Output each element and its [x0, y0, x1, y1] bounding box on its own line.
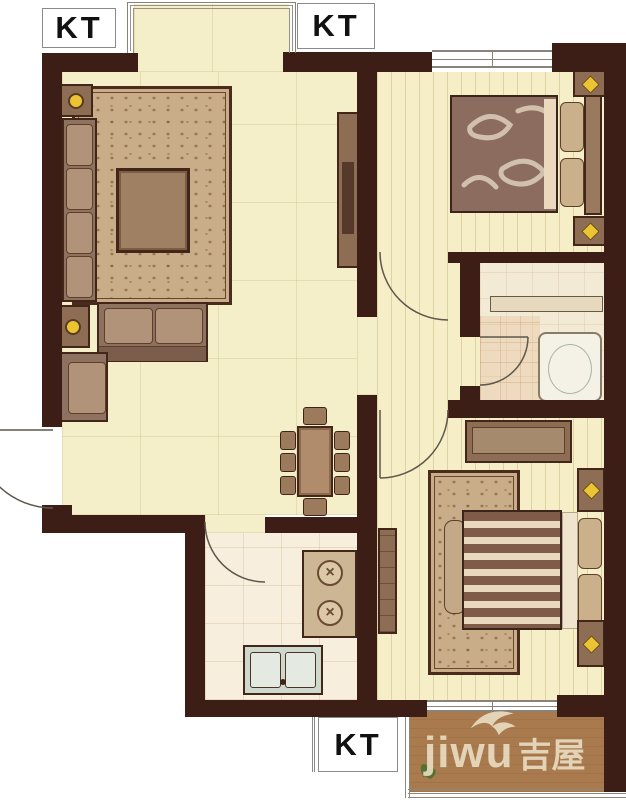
dining-chair [303, 498, 327, 516]
kt-label-bottom: KT [318, 717, 398, 772]
kt-label-top-left: KT [42, 8, 116, 48]
coffee-table [116, 168, 190, 253]
lamp-icon [65, 319, 81, 335]
master-pillow [578, 518, 602, 569]
star-lamp-icon [581, 75, 599, 93]
corner-table-top [58, 84, 93, 117]
lamp-icon [68, 93, 84, 109]
wall [42, 53, 62, 427]
bedroom2-nightstand [573, 70, 606, 97]
wall [460, 263, 480, 337]
wall [185, 515, 205, 717]
master-bed-sheet [562, 512, 578, 629]
master-wardrobe [378, 528, 397, 634]
floor-plan: × × [0, 0, 626, 800]
bed-sheet [544, 99, 556, 209]
wall [448, 400, 626, 418]
wall [448, 252, 604, 263]
sofa-small [97, 302, 208, 362]
star-lamp-icon [582, 635, 600, 653]
bedroom2-pillow [560, 158, 584, 207]
faucet [280, 679, 286, 685]
kitchen-sink [243, 645, 323, 695]
dining-chair [280, 431, 296, 450]
wall [42, 515, 205, 533]
sofa-long [62, 118, 97, 302]
armchair [56, 352, 108, 422]
dining-chair [334, 453, 350, 472]
dining-chair [280, 453, 296, 472]
tv [342, 162, 354, 234]
dining-table [297, 426, 333, 497]
balcony-railing [408, 788, 626, 798]
stove-burner-icon: × [317, 600, 343, 626]
kt-label-top-center: KT [297, 3, 375, 49]
dining-chair [334, 476, 350, 495]
dining-chair [334, 431, 350, 450]
kt-extension-line [312, 717, 315, 772]
master-nightstand [577, 468, 605, 512]
bedroom2-bed [450, 95, 558, 213]
kt-label-text: KT [334, 727, 381, 763]
dining-chair [303, 407, 327, 425]
kitchen-counter-stove: × × [302, 550, 357, 638]
bedroom2-nightstand [573, 216, 606, 246]
wall [357, 395, 377, 717]
bedroom2-pillow [560, 102, 584, 152]
star-lamp-icon [581, 222, 599, 240]
kitchen-doorway-floor [205, 515, 265, 533]
kt-label-text: KT [312, 8, 359, 44]
wall [357, 52, 377, 317]
star-lamp-icon [582, 481, 600, 499]
bathroom-vanity [490, 296, 603, 312]
stove-burner-icon: × [317, 560, 343, 586]
bathroom-tile-area [480, 316, 540, 403]
tv-cabinet [337, 112, 359, 268]
window-symbol [427, 700, 557, 712]
bedroom2-headboard [584, 95, 602, 215]
master-doorway-floor [377, 400, 448, 418]
sink-basin [285, 652, 316, 688]
master-nightstand [577, 620, 605, 667]
watermark-cjk: 吉屋 [518, 728, 586, 777]
master-dresser [465, 420, 572, 463]
dining-chair [280, 476, 296, 495]
hall-opening-floor [357, 317, 377, 395]
watermark-latin: jiwu [424, 728, 514, 778]
door-swing-arc [0, 430, 53, 508]
kt-label-text: KT [55, 10, 102, 46]
sink-basin [250, 652, 281, 688]
balcony-side-line [405, 717, 410, 798]
wall [185, 700, 427, 717]
bay-window-line [133, 8, 290, 53]
bay-window [127, 2, 296, 53]
wall [557, 695, 626, 717]
master-bed [462, 510, 562, 630]
watermark: jiwu 吉屋 [424, 728, 624, 778]
wall [265, 517, 357, 533]
bathtub [538, 332, 602, 402]
master-pillow [578, 574, 602, 626]
window-symbol [432, 50, 552, 68]
